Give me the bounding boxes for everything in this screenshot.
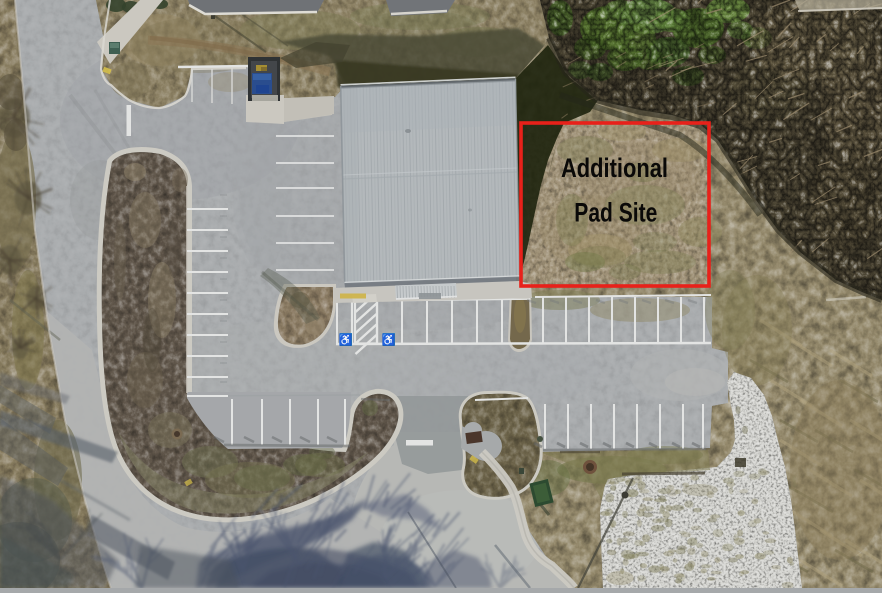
svg-text:♿: ♿	[339, 334, 353, 347]
svg-text:♿: ♿	[382, 334, 396, 347]
svg-text:Pad Site: Pad Site	[574, 198, 657, 228]
svg-text:Additional: Additional	[561, 153, 668, 183]
